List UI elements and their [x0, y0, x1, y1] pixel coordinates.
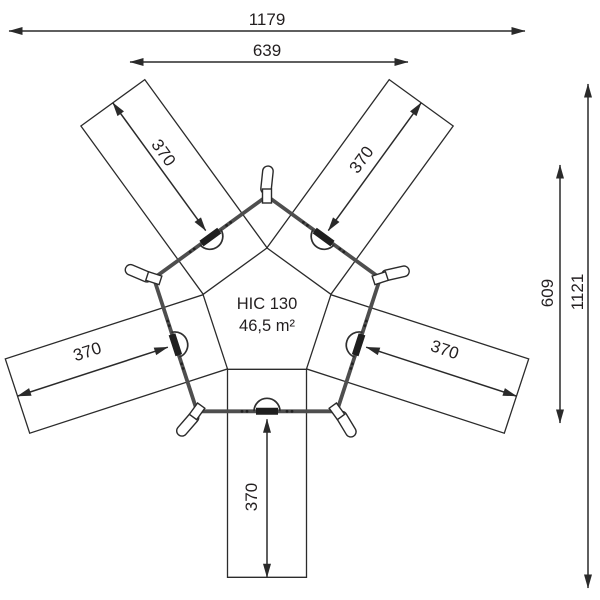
fixing-dot — [182, 367, 185, 370]
fixing-dot — [241, 410, 244, 413]
dimension-line-arm-top-left — [113, 103, 206, 231]
fixing-dot — [189, 250, 192, 253]
fixing-dot — [350, 367, 353, 370]
dimension-label-arm-right: 370 — [428, 336, 461, 363]
handle-bar-right — [355, 334, 362, 355]
fixing-dot — [351, 362, 354, 365]
fixing-dot — [225, 224, 228, 227]
product-area-label: 46,5 m² — [239, 317, 295, 335]
dimension-label-arm-top-right: 370 — [346, 143, 378, 177]
product-label: HIC 130 46,5 m² — [237, 295, 298, 335]
fixing-dot — [342, 250, 345, 253]
dimension-label-overall-width: 1179 — [249, 10, 286, 29]
fixing-dot — [365, 320, 368, 323]
fixing-dot — [180, 362, 183, 365]
fixing-dot — [246, 410, 249, 413]
fixing-dot — [166, 320, 169, 323]
dimension-label-arm-top-left: 370 — [147, 136, 179, 170]
dimension-line-arm-top-right — [328, 103, 421, 231]
product-model-label: HIC 130 — [237, 295, 298, 313]
hic-130-plan-diagram: 1179 639 1121 609 370 370 370 370 370 HI… — [0, 0, 600, 600]
fixing-dot — [291, 410, 294, 413]
dimension-label-overall-height: 1121 — [568, 274, 587, 311]
fixing-dot — [286, 410, 289, 413]
fixing-dot — [306, 224, 309, 227]
handle-bar-left — [172, 334, 179, 355]
fixing-dot — [338, 248, 341, 251]
fixing-dot — [363, 324, 366, 327]
fixing-dot — [168, 324, 171, 327]
fixing-dot — [302, 221, 305, 224]
fixing-dot — [229, 221, 232, 224]
handle-bar-top-left — [202, 231, 220, 244]
handle-bar-top-right — [315, 231, 333, 244]
dimension-label-right-inner-height: 609 — [538, 279, 557, 307]
corner-post-top — [263, 189, 272, 203]
dimension-label-arm-left: 370 — [71, 338, 104, 365]
dimension-label-top-platform-width: 639 — [253, 41, 281, 60]
dimension-label-arm-bottom: 370 — [242, 483, 261, 511]
fixing-dot — [193, 248, 196, 251]
